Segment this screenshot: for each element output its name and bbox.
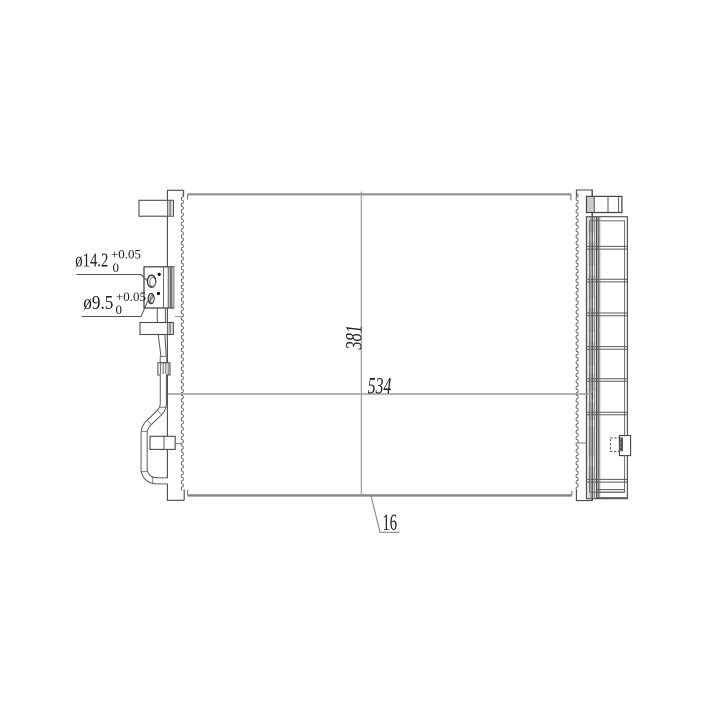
svg-text:0: 0	[116, 302, 123, 317]
svg-text:ø14.2: ø14.2	[75, 249, 108, 271]
svg-text:534: 534	[368, 373, 392, 398]
svg-text:381: 381	[342, 325, 367, 350]
svg-text:ø9.5: ø9.5	[83, 292, 113, 314]
svg-text:0: 0	[113, 260, 120, 275]
svg-text:16: 16	[383, 510, 398, 535]
